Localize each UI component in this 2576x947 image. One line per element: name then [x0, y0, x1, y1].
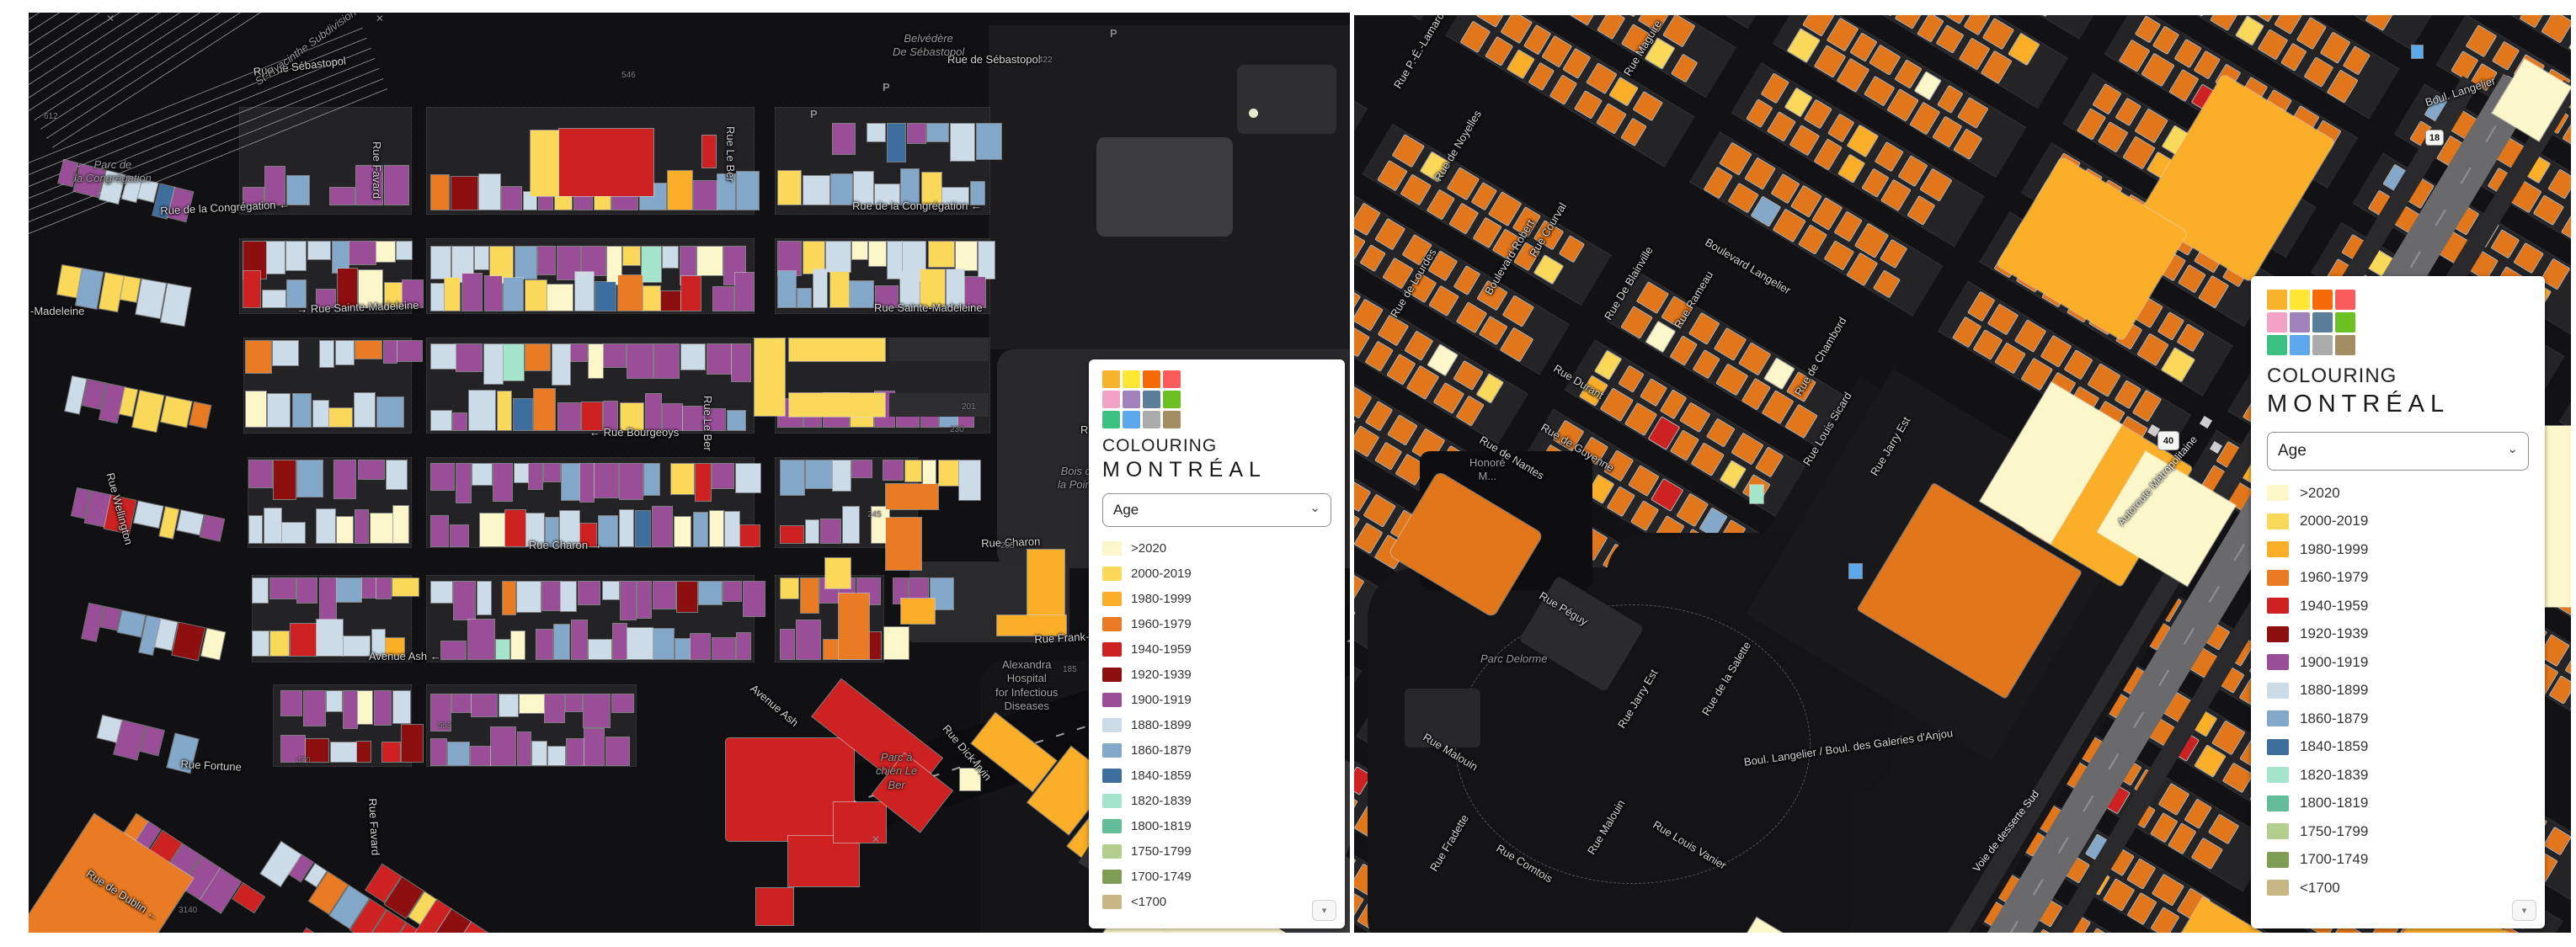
- legend-entry: 2000-2019: [1102, 561, 1331, 586]
- building-row: [246, 341, 412, 391]
- building-footprint: [702, 136, 716, 168]
- building: [515, 247, 536, 279]
- legend-swatch: [2267, 683, 2289, 699]
- building: [291, 928, 320, 933]
- logo-swatch: [2335, 312, 2355, 333]
- building: [663, 247, 678, 268]
- building-footprint: [1249, 109, 1258, 118]
- building-row: [781, 460, 987, 511]
- building: [431, 247, 451, 279]
- legend-swatch: [1102, 668, 1122, 682]
- building: [99, 273, 124, 311]
- building: [330, 188, 354, 205]
- building: [320, 578, 336, 620]
- building: [929, 242, 955, 267]
- street-label: Rue Sainte-Madeleine: [874, 301, 983, 315]
- logo-swatch: [1123, 391, 1140, 408]
- building: [520, 694, 544, 713]
- building: [480, 513, 504, 546]
- logo-swatch: [1102, 370, 1120, 388]
- building: [502, 187, 521, 210]
- legend-entry-label: 1800-1819: [1131, 819, 1192, 833]
- logo-swatch: [2312, 335, 2333, 355]
- building: [76, 269, 103, 309]
- house-number: 205: [1000, 541, 1015, 552]
- building: [712, 638, 735, 659]
- building: [159, 507, 179, 539]
- building: [620, 464, 643, 499]
- building-footprint: [2412, 45, 2423, 58]
- building: [736, 464, 761, 492]
- building: [571, 344, 587, 361]
- building: [677, 582, 696, 612]
- building: [392, 578, 419, 596]
- house-number: 470: [296, 756, 311, 767]
- house-number: 422: [1038, 56, 1053, 67]
- building: [484, 344, 502, 384]
- poi-label: P: [810, 108, 818, 121]
- building: [548, 747, 566, 765]
- building: [471, 747, 490, 765]
- building: [589, 640, 611, 659]
- building: [643, 286, 660, 311]
- building: [595, 464, 617, 497]
- legend-swatch: [1102, 642, 1122, 657]
- building: [511, 631, 525, 659]
- building: [681, 276, 701, 311]
- building: [377, 397, 403, 427]
- building: [337, 578, 361, 602]
- building: [675, 639, 690, 659]
- street-label: Rue Favard: [365, 798, 382, 856]
- building-footprint: [825, 558, 851, 588]
- colouring-logo: [1102, 370, 1181, 428]
- legend-entry: 1750-1799: [1102, 838, 1331, 864]
- building: [905, 460, 921, 481]
- building: [661, 291, 680, 311]
- legend-swatch: [2267, 767, 2289, 783]
- logo-swatch: [2335, 335, 2355, 355]
- building: [329, 408, 351, 427]
- legend-entry-label: 1860-1879: [2300, 710, 2368, 727]
- poi-label: ✕: [872, 833, 880, 846]
- legend-entry: 1980-1999: [2267, 535, 2529, 564]
- legend-entry: 1820-1839: [2267, 761, 2529, 790]
- building: [65, 376, 86, 413]
- legend-entries: >20202000-20191980-19991960-19791940-195…: [2267, 479, 2529, 902]
- legend-entry: <1700: [1102, 889, 1331, 914]
- building-row: [79, 604, 226, 682]
- building: [505, 510, 525, 546]
- building: [387, 460, 407, 489]
- building-row: [431, 344, 755, 395]
- building: [355, 341, 381, 359]
- building: [358, 691, 372, 724]
- building: [813, 269, 827, 307]
- building: [538, 247, 555, 274]
- building-footprint: [29, 814, 193, 933]
- building: [448, 742, 468, 765]
- building: [627, 344, 653, 378]
- building-footprint: [1849, 564, 1862, 578]
- building: [534, 389, 555, 430]
- building: [472, 694, 497, 716]
- building: [699, 582, 722, 604]
- building: [735, 273, 755, 311]
- legend-swatch: [1102, 895, 1122, 909]
- building: [253, 578, 268, 603]
- building: [908, 124, 925, 143]
- legend-swatch: [2267, 739, 2289, 755]
- legend-swatch: [2267, 823, 2289, 839]
- building: [441, 641, 466, 659]
- legend-entry-label: 1960-1979: [1131, 617, 1192, 631]
- building: [385, 166, 408, 205]
- legend-entry: 1920-1939: [1102, 662, 1331, 687]
- building: [725, 512, 739, 546]
- house-number: 230: [950, 425, 964, 436]
- house-number: 201: [962, 402, 976, 413]
- building: [589, 344, 603, 378]
- logo-swatch: [1143, 411, 1160, 428]
- building: [697, 247, 723, 275]
- logo-swatch: [1102, 391, 1120, 408]
- legend-entry-label: 1960-1979: [2300, 569, 2368, 586]
- street-label: ← Rue Bourgeoys: [589, 426, 679, 439]
- legend-entry: 1750-1799: [2267, 817, 2529, 846]
- building: [536, 630, 552, 659]
- poi-label: P: [1110, 27, 1117, 40]
- legend-entry: 1820-1839: [1102, 788, 1331, 813]
- colouring-logo: [2267, 290, 2355, 355]
- building: [375, 691, 391, 725]
- chevron-down-icon: ⌄: [2507, 441, 2518, 456]
- park-building: [1405, 689, 1480, 747]
- building: [362, 578, 376, 598]
- building: [270, 631, 289, 656]
- building-footprint: [886, 484, 938, 509]
- building: [606, 737, 629, 765]
- building: [778, 271, 796, 307]
- building: [514, 399, 532, 430]
- building: [618, 275, 642, 311]
- building: [797, 289, 811, 307]
- building: [201, 629, 225, 660]
- building-footprint: [839, 593, 869, 659]
- legend-entry: >2020: [2267, 479, 2529, 508]
- building: [286, 242, 306, 270]
- legend-entry: 1800-1819: [2267, 790, 2529, 818]
- app-title-line2: MONTRÉAL: [2267, 391, 2529, 418]
- legend-entry-label: 1980-1999: [2300, 541, 2368, 558]
- legend-swatch: [2267, 795, 2289, 811]
- logo-swatch: [1123, 411, 1140, 428]
- building: [355, 510, 369, 543]
- building: [653, 629, 674, 659]
- building: [642, 247, 661, 282]
- building: [544, 464, 560, 481]
- house-number: 612: [44, 112, 58, 123]
- legend-swatch: [1102, 617, 1122, 631]
- building-row: [54, 265, 200, 339]
- building: [454, 582, 475, 620]
- building: [923, 460, 936, 487]
- legend-entry-label: 1820-1839: [1131, 794, 1192, 808]
- street-label: Rue Le Ber: [701, 396, 714, 451]
- poi-label: Parc à chien Le Ber: [876, 751, 917, 792]
- building: [797, 620, 821, 659]
- building: [620, 510, 634, 546]
- building: [313, 401, 328, 428]
- building: [331, 742, 355, 762]
- legend-swatch: [1102, 541, 1122, 556]
- building: [653, 507, 672, 546]
- building: [806, 520, 819, 543]
- building: [691, 634, 710, 659]
- building: [263, 290, 285, 307]
- building: [843, 507, 859, 543]
- legend-entry-label: 2000-2019: [1131, 567, 1192, 581]
- caret-down-icon: ▾: [2522, 905, 2527, 916]
- building: [431, 284, 444, 311]
- building: [344, 636, 370, 656]
- category-select[interactable]: Age ⌄: [2267, 432, 2529, 471]
- category-select-value: Age: [1113, 502, 1139, 519]
- building: [515, 464, 528, 482]
- building: [402, 725, 423, 762]
- street-label: Avenue Ash ←: [369, 650, 441, 663]
- building: [376, 242, 395, 262]
- building: [883, 460, 904, 480]
- building: [529, 464, 542, 489]
- logo-swatch: [2312, 290, 2333, 310]
- legend-entry-label: 1920-1939: [1131, 668, 1192, 682]
- legend-swatch: [2267, 513, 2289, 529]
- building: [177, 510, 204, 535]
- building: [713, 287, 733, 311]
- building: [243, 271, 260, 307]
- building: [317, 509, 335, 543]
- building: [357, 742, 371, 762]
- logo-swatch: [1163, 391, 1181, 408]
- building-footprint: [756, 888, 793, 925]
- legend-entry-label: 1700-1749: [2300, 851, 2368, 868]
- logo-swatch: [2312, 312, 2333, 333]
- building-row: [249, 460, 412, 511]
- building: [728, 411, 746, 430]
- app-title-line1: COLOURING: [2267, 364, 2529, 388]
- legend-entry: 1700-1749: [2267, 846, 2529, 875]
- building: [475, 247, 488, 269]
- building: [612, 694, 633, 712]
- legend-swatch: [1102, 844, 1122, 859]
- building: [867, 124, 885, 141]
- building-row: [62, 376, 209, 455]
- legend-entry: 1700-1749: [1102, 864, 1331, 889]
- logo-swatch: [2267, 290, 2287, 310]
- building-row: [431, 765, 633, 816]
- legend-entry-label: >2020: [1131, 541, 1166, 556]
- building: [384, 341, 397, 363]
- building: [333, 242, 349, 273]
- building: [613, 624, 627, 659]
- building-footprint: [559, 129, 653, 196]
- building: [884, 627, 909, 659]
- building: [951, 124, 974, 161]
- building: [636, 511, 650, 546]
- legend-panel: COLOURING MONTRÉAL Age ⌄ >20202000-20191…: [2251, 276, 2545, 928]
- building: [558, 403, 580, 430]
- legend-entry: 1880-1899: [2267, 677, 2529, 705]
- logo-swatch: [2290, 335, 2310, 355]
- building: [462, 274, 482, 311]
- building: [431, 464, 454, 490]
- building: [431, 344, 456, 369]
- caret-down-icon: ▾: [1322, 905, 1327, 916]
- building: [189, 402, 211, 428]
- legend-entry: 1920-1939: [2267, 620, 2529, 649]
- building: [584, 694, 610, 727]
- building: [737, 172, 759, 210]
- building: [803, 176, 829, 205]
- building-row: [281, 762, 416, 812]
- legend-entry: 1860-1879: [2267, 705, 2529, 733]
- logo-swatch: [1102, 411, 1120, 428]
- legend-swatch: [1102, 592, 1122, 606]
- building: [334, 460, 356, 498]
- building: [267, 242, 285, 274]
- building: [977, 124, 1001, 159]
- building: [850, 281, 873, 307]
- building: [801, 578, 819, 613]
- building: [132, 391, 164, 432]
- building: [671, 464, 694, 494]
- building: [732, 344, 750, 381]
- building-footprint: [531, 130, 559, 196]
- building: [694, 513, 707, 546]
- legend-swatch: [1102, 567, 1122, 581]
- building: [493, 464, 512, 501]
- poi-label: Parc de la Congrégation: [74, 158, 152, 186]
- building: [291, 624, 316, 656]
- building: [668, 171, 692, 210]
- building: [297, 578, 317, 603]
- legend-entry: 1900-1919: [2267, 648, 2529, 677]
- building: [491, 727, 515, 765]
- building: [582, 247, 605, 275]
- building: [595, 282, 616, 311]
- app-title-line1: COLOURING: [1102, 436, 1331, 456]
- building: [246, 391, 266, 427]
- building: [431, 411, 451, 430]
- building-row: [90, 716, 200, 789]
- building: [552, 344, 570, 385]
- building: [456, 344, 482, 371]
- house-number: 553: [438, 721, 452, 732]
- legend-swatch: [2267, 852, 2289, 868]
- building: [273, 341, 298, 365]
- building: [445, 278, 460, 311]
- building: [621, 582, 636, 620]
- legend-swatch: [2267, 654, 2289, 670]
- building: [281, 691, 301, 716]
- building: [532, 742, 546, 765]
- building: [580, 464, 593, 502]
- building-footprint: [789, 338, 885, 361]
- street-label: Rue Le Ber: [723, 126, 737, 182]
- legend-entry-label: 1840-1859: [1131, 769, 1192, 783]
- legend-entry: 1960-1979: [1102, 611, 1331, 636]
- building: [710, 511, 723, 546]
- building: [297, 460, 323, 497]
- logo-swatch: [1143, 391, 1160, 408]
- logo-swatch: [1163, 411, 1181, 428]
- building-footprint: [1096, 137, 1233, 237]
- legend-entry: 1860-1879: [1102, 737, 1331, 763]
- building: [723, 582, 741, 601]
- building: [293, 394, 311, 427]
- building: [317, 620, 343, 656]
- building: [584, 729, 603, 765]
- building: [712, 464, 733, 488]
- building: [868, 632, 881, 659]
- building: [118, 610, 146, 636]
- building: [355, 393, 375, 427]
- building: [542, 582, 561, 610]
- legend-collapse-button[interactable]: ▾: [1312, 900, 1336, 921]
- legend-swatch: [2267, 598, 2289, 614]
- legend-entry: 1940-1959: [1102, 636, 1331, 662]
- building: [562, 464, 579, 500]
- building: [173, 623, 205, 660]
- building: [744, 582, 765, 616]
- building: [431, 175, 449, 210]
- building: [644, 464, 659, 495]
- legend-entry-label: 1900-1919: [2300, 654, 2368, 671]
- building: [623, 247, 640, 265]
- legend-collapse-button[interactable]: ▾: [2512, 900, 2536, 921]
- logo-swatch: [2290, 290, 2310, 310]
- building: [349, 242, 376, 264]
- building: [575, 272, 594, 311]
- building: [393, 691, 410, 723]
- legend-entry-label: <1700: [2300, 880, 2340, 896]
- building: [869, 242, 885, 266]
- logo-swatch: [1143, 370, 1160, 388]
- building: [572, 620, 587, 659]
- building: [504, 278, 523, 311]
- building: [479, 174, 499, 210]
- legend-entries: >20202000-20191980-19991960-19791940-195…: [1102, 535, 1331, 914]
- poi-label: Alexandra Hospital for Infectious Diseas…: [995, 658, 1058, 713]
- legend-entry: 1900-1919: [1102, 687, 1331, 712]
- poi-label: ✕: [376, 13, 384, 25]
- house-number: 185: [1063, 665, 1077, 676]
- legend-swatch: [2267, 485, 2289, 501]
- building: [376, 578, 390, 599]
- legend-panel: COLOURING MONTRÉAL Age ⌄ >20202000-20191…: [1089, 359, 1345, 928]
- building: [282, 523, 305, 543]
- building: [681, 344, 705, 370]
- building: [675, 517, 691, 546]
- chevron-down-icon: ⌄: [1309, 500, 1320, 515]
- building: [499, 694, 518, 716]
- legend-entry: 1800-1819: [1102, 813, 1331, 838]
- building: [888, 124, 906, 162]
- legend-swatch: [1102, 693, 1122, 707]
- category-select[interactable]: Age ⌄: [1102, 493, 1331, 527]
- building: [82, 604, 104, 641]
